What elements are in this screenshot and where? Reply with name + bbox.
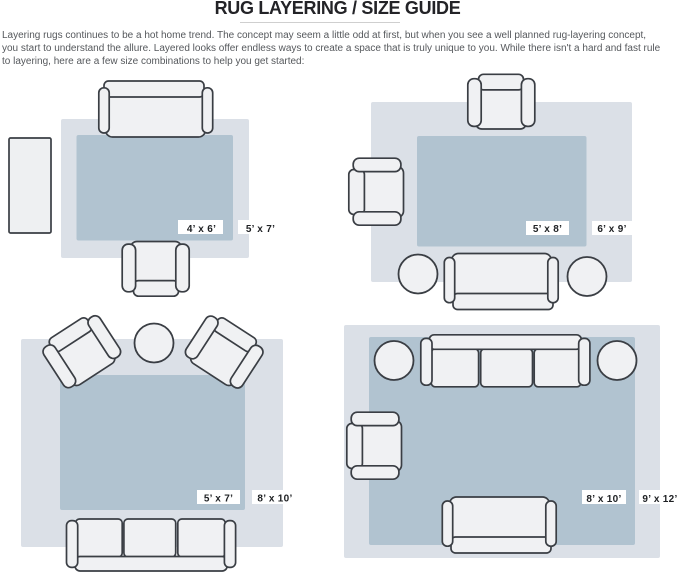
svg-text:6’ x 9’: 6’ x 9’ [597,224,626,235]
svg-text:8’ x 10’: 8’ x 10’ [257,494,292,505]
svg-text:5’ x 7’: 5’ x 7’ [246,224,275,235]
svg-text:5’ x 8’: 5’ x 8’ [533,224,562,235]
svg-text:9’ x 12’: 9’ x 12’ [642,494,677,505]
svg-text:4’ x 6’: 4’ x 6’ [187,224,216,235]
svg-text:5’ x 7’: 5’ x 7’ [204,494,233,505]
svg-text:8’ x 10’: 8’ x 10’ [586,494,621,505]
